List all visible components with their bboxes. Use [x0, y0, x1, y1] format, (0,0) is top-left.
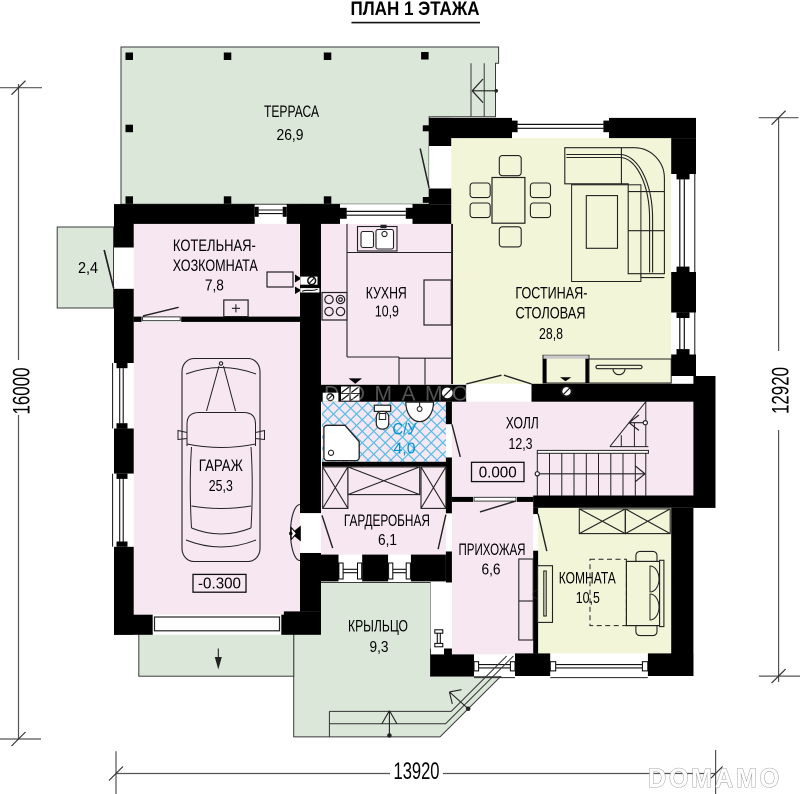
- svg-text:6,6: 6,6: [482, 562, 501, 579]
- svg-text:КРЫЛЬЦО: КРЫЛЬЦО: [348, 617, 408, 636]
- svg-text:28,8: 28,8: [539, 326, 563, 343]
- svg-text:26,9: 26,9: [277, 127, 304, 144]
- svg-text:DOMAMO: DOMAMO: [324, 383, 478, 406]
- svg-text:7,8: 7,8: [205, 278, 224, 295]
- svg-text:10,5: 10,5: [576, 590, 600, 607]
- svg-text:КОТЕЛЬНАЯ-: КОТЕЛЬНАЯ-: [173, 236, 256, 255]
- svg-text:13920: 13920: [394, 758, 440, 785]
- svg-text:0.000: 0.000: [479, 465, 517, 482]
- svg-text:ГАРАЖ: ГАРАЖ: [199, 456, 243, 475]
- svg-text:9,3: 9,3: [370, 639, 389, 656]
- svg-text:25,3: 25,3: [209, 478, 233, 495]
- svg-text:12,3: 12,3: [509, 436, 533, 453]
- svg-text:ТЕРРАСА: ТЕРРАСА: [264, 102, 319, 121]
- svg-text:12920: 12920: [768, 367, 795, 414]
- svg-text:С/У: С/У: [393, 419, 417, 438]
- svg-text:10,9: 10,9: [375, 304, 399, 321]
- svg-text:-0.300: -0.300: [198, 575, 241, 592]
- svg-text:DOMAMO: DOMAMO: [648, 763, 782, 793]
- svg-text:ПЛАН 1 ЭТАЖА: ПЛАН 1 ЭТАЖА: [351, 0, 480, 20]
- svg-text:ПРИХОЖАЯ: ПРИХОЖАЯ: [459, 540, 526, 559]
- svg-text:4,0: 4,0: [394, 440, 416, 457]
- svg-text:6,1: 6,1: [378, 532, 397, 549]
- svg-text:16000: 16000: [9, 368, 36, 415]
- svg-text:2,4: 2,4: [78, 260, 98, 277]
- svg-text:ХОЛЛ: ХОЛЛ: [506, 414, 539, 433]
- svg-text:КОМНАТА: КОМНАТА: [559, 569, 616, 588]
- svg-text:ГОСТИНАЯ-: ГОСТИНАЯ-: [515, 284, 587, 303]
- svg-text:КУХНЯ: КУХНЯ: [366, 283, 407, 302]
- svg-text:СТОЛОВАЯ: СТОЛОВАЯ: [516, 304, 586, 323]
- svg-text:ГАРДЕРОБНАЯ: ГАРДЕРОБНАЯ: [344, 511, 430, 530]
- svg-text:ХОЗКОМНАТА: ХОЗКОМНАТА: [173, 256, 258, 275]
